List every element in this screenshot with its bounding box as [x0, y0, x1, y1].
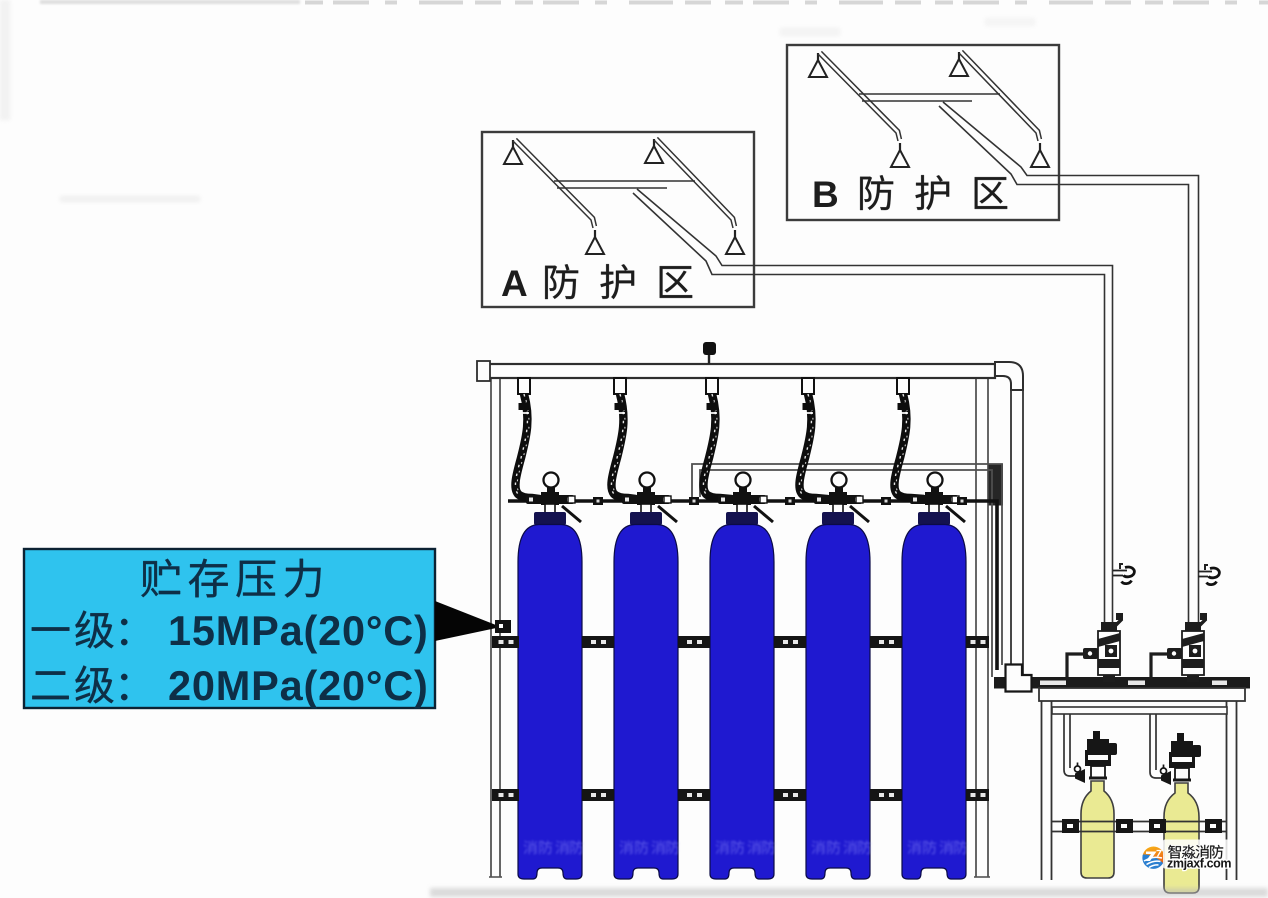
svg-text:zmjaxf.com: zmjaxf.com	[1167, 857, 1231, 871]
svg-text:A: A	[501, 263, 528, 304]
svg-text:B: B	[812, 174, 839, 215]
svg-text:20MPa(20°C): 20MPa(20°C)	[168, 662, 429, 709]
svg-text:15MPa(20°C): 15MPa(20°C)	[168, 607, 429, 654]
